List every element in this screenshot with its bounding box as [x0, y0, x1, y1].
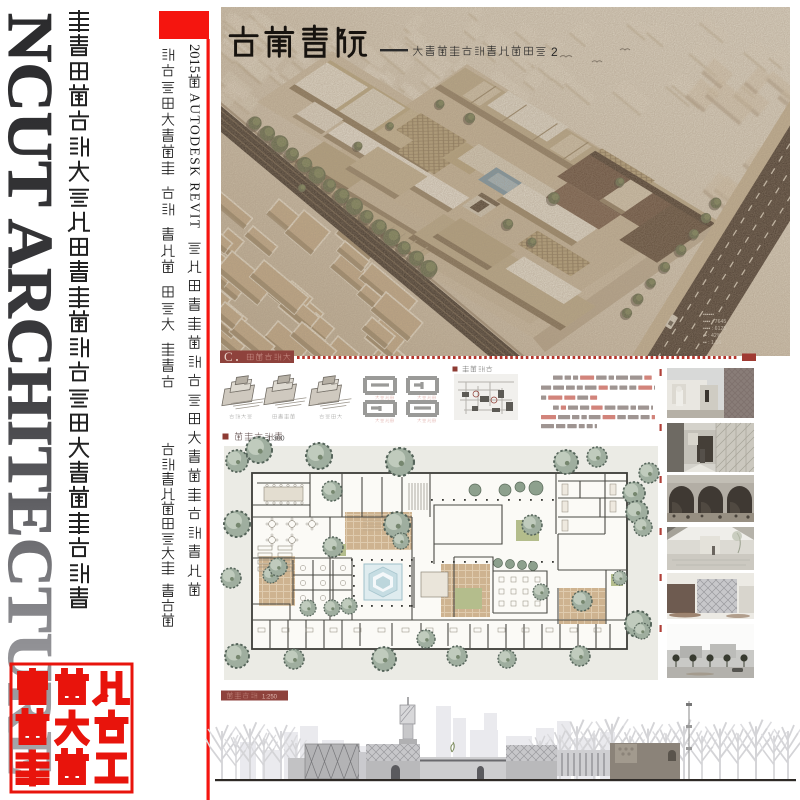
- svg-text:2: 2: [551, 45, 558, 59]
- svg-text:NCUT ARCHITECTURE: NCUT ARCHITECTURE: [0, 13, 66, 777]
- svg-text:C: C: [224, 349, 233, 364]
- svg-text:1:250: 1:250: [262, 695, 278, 701]
- svg-text:1:300: 1:300: [267, 436, 285, 443]
- svg-text:2015: 2015: [186, 44, 202, 73]
- svg-text:AUTODESK REVIT: AUTODESK REVIT: [188, 93, 203, 230]
